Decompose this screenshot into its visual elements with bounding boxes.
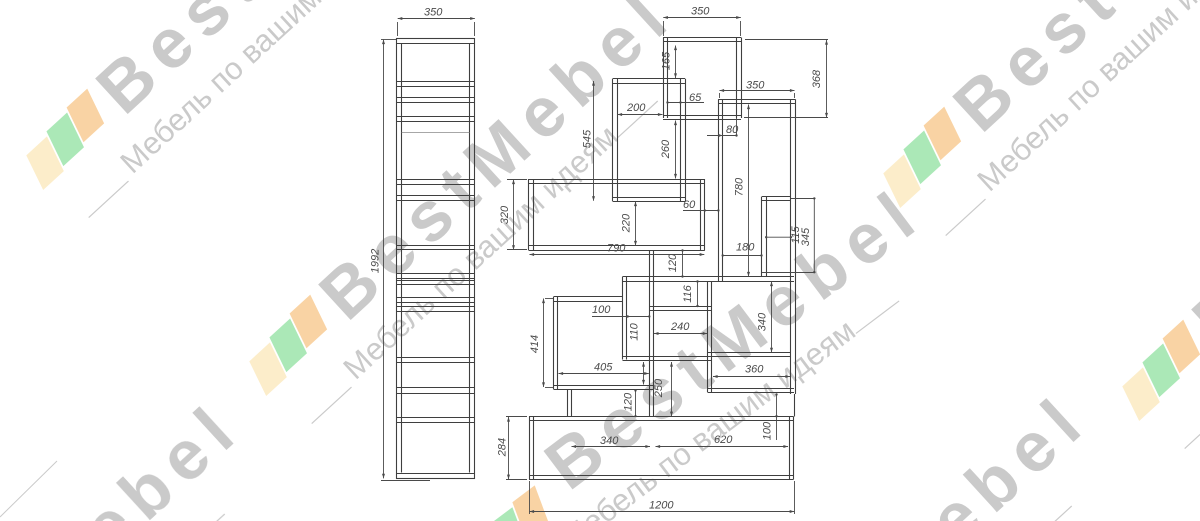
svg-text:80: 80 <box>726 124 739 136</box>
svg-text:414: 414 <box>529 335 541 353</box>
svg-text:340: 340 <box>600 435 619 447</box>
svg-text:60: 60 <box>683 199 696 211</box>
svg-text:260: 260 <box>660 139 672 159</box>
svg-text:320: 320 <box>499 205 511 224</box>
svg-text:368: 368 <box>811 69 823 88</box>
svg-text:350: 350 <box>424 7 443 19</box>
svg-text:284: 284 <box>497 438 509 457</box>
svg-text:65: 65 <box>689 92 702 104</box>
svg-text:340: 340 <box>757 312 769 331</box>
svg-text:165: 165 <box>661 51 673 70</box>
svg-text:110: 110 <box>629 322 641 340</box>
svg-text:240: 240 <box>670 321 690 333</box>
svg-text:116: 116 <box>682 284 694 302</box>
svg-text:120: 120 <box>623 392 635 411</box>
svg-text:100: 100 <box>592 304 611 316</box>
svg-text:405: 405 <box>594 362 613 374</box>
svg-text:545: 545 <box>582 129 594 148</box>
svg-text:350: 350 <box>746 80 765 92</box>
svg-text:620: 620 <box>714 434 733 446</box>
svg-text:1200: 1200 <box>649 500 674 512</box>
svg-text:250: 250 <box>653 378 665 398</box>
svg-text:350: 350 <box>691 6 710 18</box>
svg-text:220: 220 <box>621 213 633 233</box>
svg-text:200: 200 <box>626 102 646 114</box>
svg-text:790: 790 <box>607 243 626 255</box>
svg-text:100: 100 <box>762 421 774 440</box>
svg-text:120: 120 <box>667 253 679 272</box>
svg-text:360: 360 <box>745 364 764 376</box>
svg-text:345: 345 <box>800 227 812 246</box>
svg-text:1992: 1992 <box>370 249 382 273</box>
svg-text:180: 180 <box>736 242 755 254</box>
svg-text:780: 780 <box>734 177 746 196</box>
